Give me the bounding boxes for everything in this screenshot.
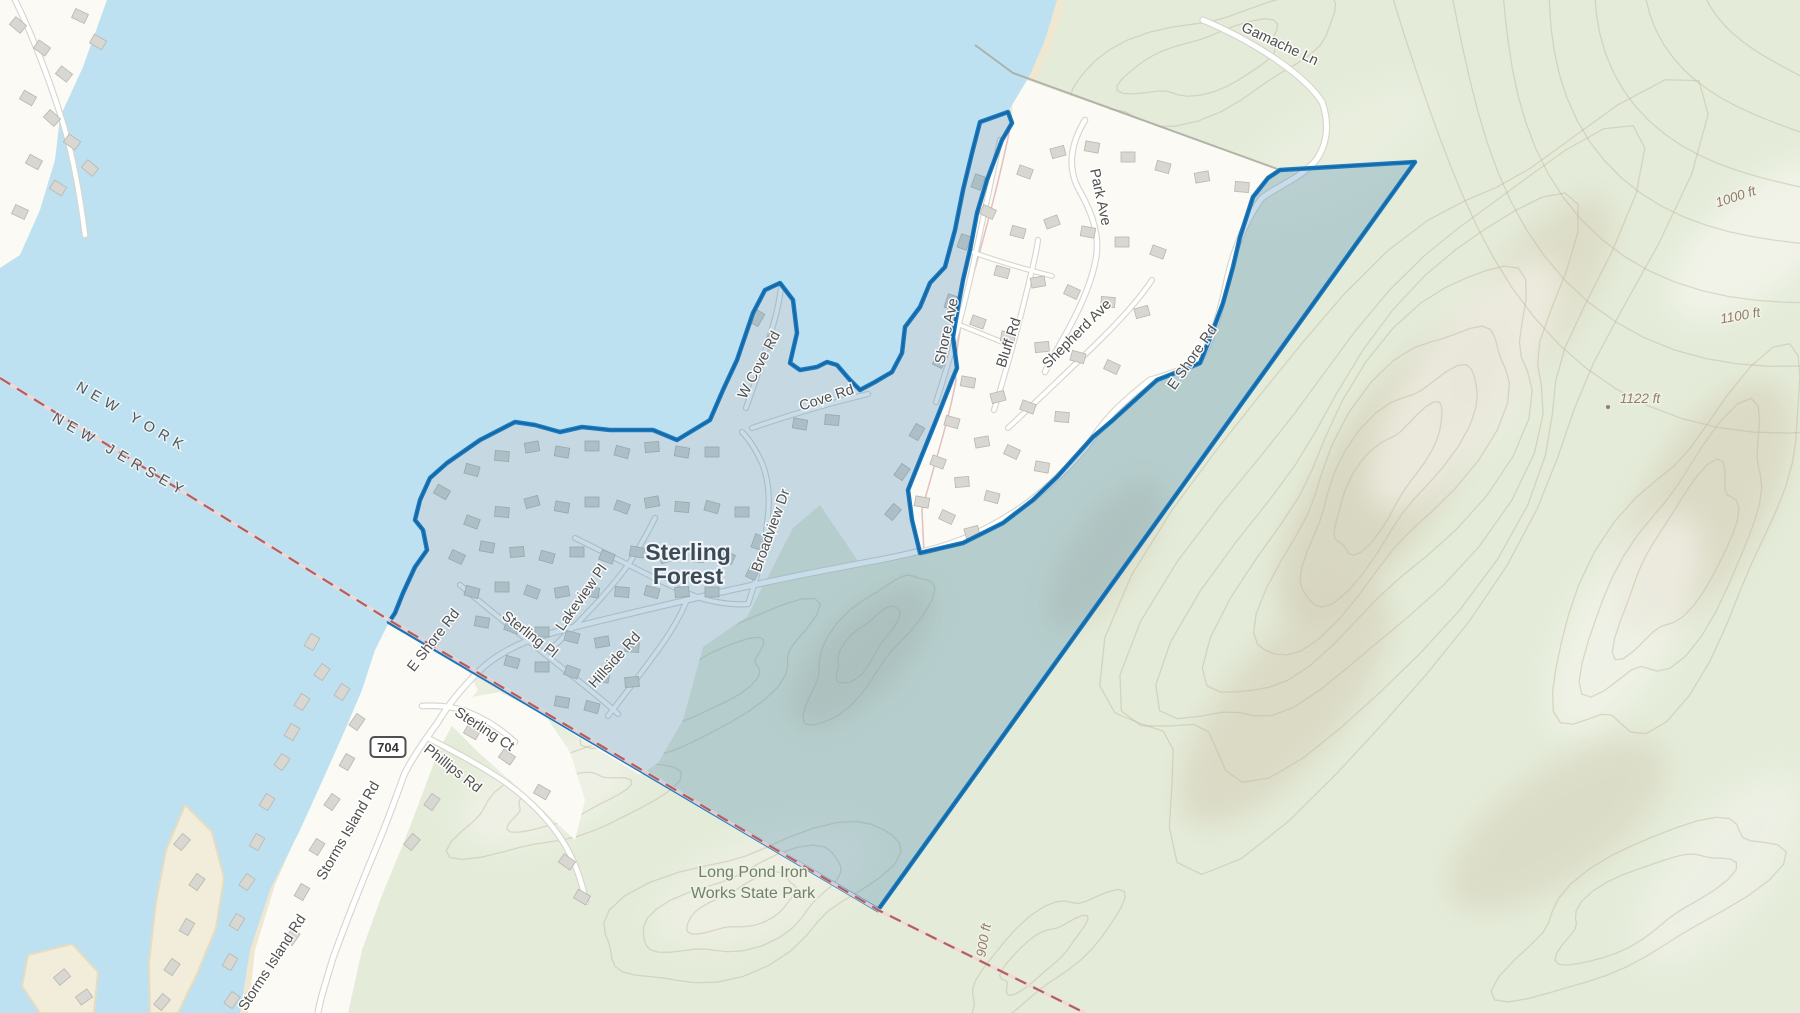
elevation-label: 1122 ft (1620, 391, 1662, 406)
sterling-forest-label: Forest (653, 563, 724, 589)
sterling-forest-label: Sterling (645, 539, 731, 565)
route-shield-704: 704 (370, 736, 407, 758)
map-stage[interactable]: Gamache LnPark AveBluff RdShepherd AveSh… (0, 0, 1800, 1013)
map-canvas[interactable]: Gamache LnPark AveBluff RdShepherd AveSh… (0, 0, 1800, 1013)
state-park-label: Long Pond Iron (698, 864, 807, 881)
state-park-label: Works State Park (691, 885, 816, 902)
